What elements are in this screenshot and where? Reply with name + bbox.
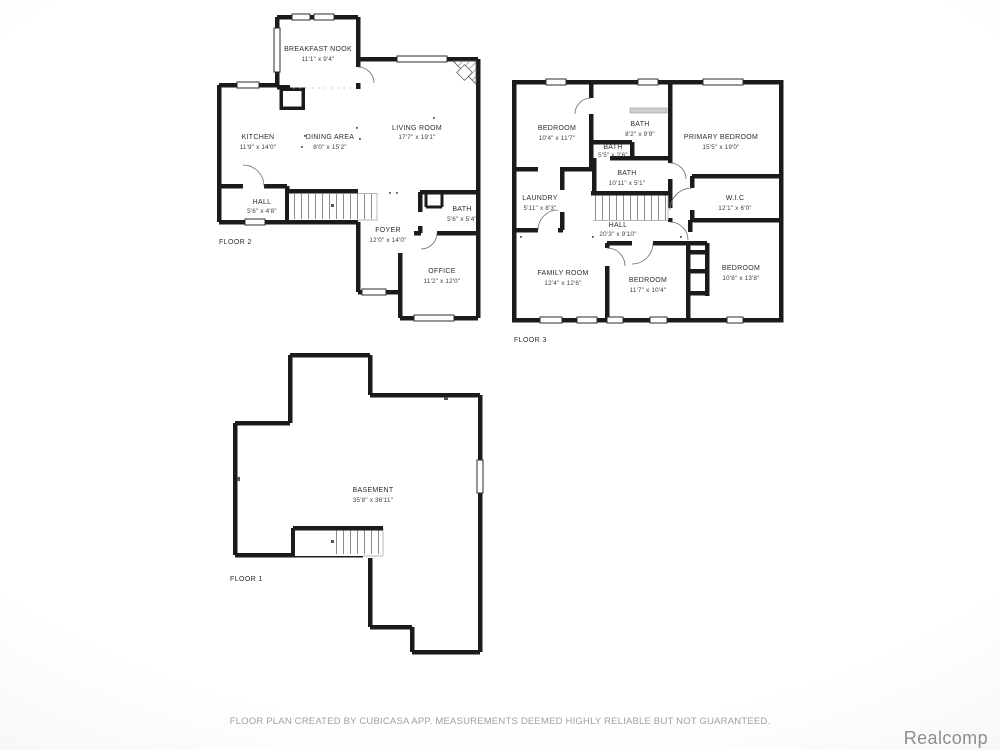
room-label-breakfast-nook: BREAKFAST NOOK <box>284 46 352 53</box>
room-label-family-room: FAMILY ROOM <box>537 270 588 277</box>
room-label-dining-area: DINING AREA <box>306 134 354 141</box>
room-label-bath-main: BATH <box>630 121 649 128</box>
floor-3-label: FLOOR 3 <box>514 337 547 344</box>
room-dims-hall-f3: 20'3" x 9'10" <box>599 231 636 238</box>
room-dims-basement: 35'8" x 36'11" <box>353 497 393 504</box>
room-dims-bedroom-se: 10'8" x 13'8" <box>722 275 759 282</box>
room-dims-primary-bedroom: 15'5" x 19'0" <box>702 144 739 151</box>
room-label-living-room: LIVING ROOM <box>392 125 442 132</box>
room-dims-dining-area: 8'0" x 15'2" <box>313 144 346 151</box>
bath-closet-walls <box>426 194 442 207</box>
living-room-fireplace <box>453 61 476 84</box>
room-dims-bath-small: 5'5" x 2'6" <box>598 152 628 159</box>
chimney-box <box>281 89 303 108</box>
room-dims-bath-hall: 10'11" x 5'1" <box>609 180 646 187</box>
floor-1-stairs <box>293 528 383 556</box>
room-label-laundry: LAUNDRY <box>522 195 557 202</box>
room-label-bath-f2: BATH <box>452 206 471 213</box>
floor-2-stairs <box>287 191 377 220</box>
room-label-basement: BASEMENT <box>353 487 394 494</box>
floor-plan-canvas: BREAKFAST NOOK 11'1" x 9'4" KITCHEN 11'9… <box>0 0 1000 750</box>
floor-2-plan: BREAKFAST NOOK 11'1" x 9'4" KITCHEN 11'9… <box>219 14 478 321</box>
room-dims-breakfast-nook: 11'1" x 9'4" <box>302 56 335 63</box>
floor-1-plan: BASEMENT 35'8" x 36'11" FLOOR 1 <box>230 355 483 652</box>
shower-fixture <box>630 108 667 113</box>
room-dims-hall-f2: 5'6" x 4'8" <box>247 208 277 215</box>
room-label-kitchen: KITCHEN <box>242 134 275 141</box>
room-label-hall-f3: HALL <box>609 222 628 229</box>
room-label-hall-f2: HALL <box>253 199 272 206</box>
room-label-bedroom-s: BEDROOM <box>629 277 667 284</box>
room-label-office: OFFICE <box>428 268 455 275</box>
room-label-bath-hall: BATH <box>617 170 636 177</box>
room-label-foyer: FOYER <box>375 227 401 234</box>
room-label-primary-bedroom: PRIMARY BEDROOM <box>684 134 758 141</box>
room-dims-bath-f2: 5'6" x 5'4" <box>447 216 477 223</box>
room-dims-wic: 12'1" x 6'0" <box>718 205 751 212</box>
room-label-wic: W.I.C <box>726 195 745 202</box>
floor-2-label: FLOOR 2 <box>219 239 252 246</box>
floor-2-windows <box>237 14 454 321</box>
room-dims-kitchen: 11'9" x 14'0" <box>240 144 277 151</box>
floor-1-label: FLOOR 1 <box>230 576 263 583</box>
room-dims-office: 11'2" x 12'0" <box>424 278 461 285</box>
realcomp-watermark: Realcomp <box>904 728 988 748</box>
room-dims-family-room: 12'4" x 12'6" <box>544 280 581 287</box>
room-dims-bath-main: 8'2" x 9'9" <box>625 131 655 138</box>
floor-3-stairs <box>591 193 670 221</box>
room-dims-foyer: 12'0" x 14'0" <box>369 237 406 244</box>
room-dims-living-room: 17'7" x 19'1" <box>398 134 435 141</box>
room-dims-bedroom-s: 11'7" x 10'4" <box>630 287 667 294</box>
room-dims-laundry: 5'11" x 8'3" <box>524 205 557 212</box>
room-label-bedroom-nw: BEDROOM <box>538 125 576 132</box>
floor-1-windows <box>477 460 483 493</box>
room-dims-bedroom-nw: 10'4" x 11'7" <box>539 135 576 142</box>
room-label-bath-small: BATH <box>603 144 622 151</box>
disclaimer-text: FLOOR PLAN CREATED BY CUBICASA APP. MEAS… <box>230 716 771 727</box>
floor-3-plan: BEDROOM 10'4" x 11'7" BATH 8'2" x 9'9" P… <box>514 79 781 344</box>
floor-3-labels: BEDROOM 10'4" x 11'7" BATH 8'2" x 9'9" P… <box>514 121 760 344</box>
room-label-bedroom-se: BEDROOM <box>722 265 760 272</box>
